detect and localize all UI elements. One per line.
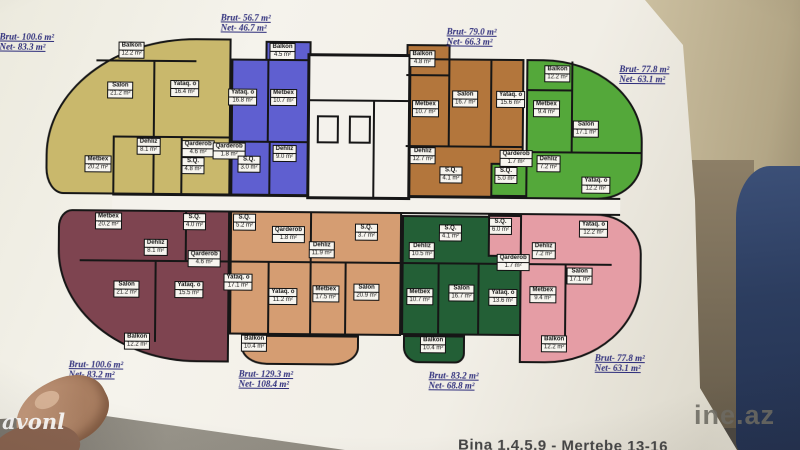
room-label: Dehliz10.5 m² (409, 242, 435, 259)
room-label: S.Q.3.7 m² (355, 224, 378, 241)
room-label: S.Q.6.0 m² (489, 218, 512, 235)
room-area: 4.1 m² (439, 175, 462, 183)
unit-area-label: Brut- 56.7 m²Net- 46.7 m² (221, 12, 271, 32)
room-area: 13.6 m² (488, 298, 517, 306)
room-label: Salon17.1 m² (573, 121, 599, 138)
room-label: Metbex10.7 m² (270, 89, 297, 106)
room-name: S.Q. (233, 214, 256, 223)
room-name: Dehliz (144, 239, 168, 248)
unit-area-label: Brut- 77.8 m²Net- 63.1 m² (595, 353, 645, 373)
room-label: Yataq. o16.4 m² (170, 80, 199, 97)
room-label: Yataq. o13.6 m² (488, 289, 517, 306)
unit-area-label: Brut- 83.2 m²Net- 68.8 m² (429, 370, 479, 390)
room-name: Metbex (270, 89, 297, 98)
room-name: Metbex (406, 288, 433, 297)
room-area: 10.7 m² (412, 109, 439, 117)
room-name: Balkon (124, 333, 150, 342)
room-label: Salon20.9 m² (353, 284, 379, 301)
brut-value: Brut- 77.8 m² (595, 353, 645, 363)
floor-plan: Brut- 100.6 m²Net- 83.3 m² Brut- 56.7 m²… (0, 0, 800, 450)
room-label: Dehliz12.7 m² (410, 147, 436, 164)
room-name: Salon (353, 284, 379, 293)
room-label: Yataq. o15.5 m² (174, 281, 203, 298)
room-label: Qarderob1.7 m² (500, 150, 533, 167)
room-area: 3.0 m² (237, 165, 260, 173)
room-area: 12.2 m² (544, 74, 570, 82)
room-label: Metbex20.2 m² (95, 212, 122, 229)
room-name: Balkon (541, 335, 567, 344)
room-name: Metbex (95, 212, 122, 221)
brut-value: Brut- 79.0 m² (447, 26, 497, 36)
room-label: Salon17.1 m² (566, 267, 592, 284)
room-area: 12.7 m² (410, 156, 436, 164)
room-area: 21.2 m² (107, 90, 133, 98)
room-label: Qarderob1.8 m² (272, 226, 305, 243)
net-value: Net- 108.4 m² (239, 379, 294, 389)
room-name: Balkon (241, 335, 267, 344)
room-name: Qarderob (182, 140, 215, 149)
room-name: Dehliz (537, 155, 561, 164)
room-name: S.Q. (439, 224, 462, 233)
brut-value: Brut- 100.6 m² (69, 359, 124, 369)
room-area: 12.2 m² (581, 186, 610, 194)
brut-value: Brut- 77.8 m² (619, 64, 669, 74)
room-area: 7.2 m² (536, 164, 560, 172)
room-area: 8.1 m² (144, 248, 168, 256)
apartment-unit-top-mid-left (230, 59, 311, 197)
room-label: Balkon4.5 m² (269, 43, 295, 60)
room-name: S.Q. (238, 156, 261, 165)
room-name: Yataq. o (223, 273, 252, 282)
room-label: Yataq. o16.8 m² (228, 88, 257, 105)
room-label: Qarderob4.6 m² (188, 250, 221, 267)
room-area: 8.1 m² (137, 147, 161, 155)
room-name: Balkon (420, 336, 446, 345)
room-label: Yataq. o17.1 m² (223, 273, 252, 290)
room-area: 4.6 m² (182, 149, 215, 157)
room-label: S.Q.4.1 m² (439, 166, 462, 183)
room-name: S.Q. (183, 213, 206, 222)
room-area: 10.7 m² (406, 297, 433, 305)
room-name: Metbex (312, 285, 339, 294)
room-name: S.Q. (439, 166, 462, 175)
room-area: 1.8 m² (272, 235, 305, 243)
room-label: Metbex10.7 m² (406, 288, 433, 305)
room-area: 4.1 m² (439, 233, 462, 241)
room-area: 12.2 m² (541, 344, 567, 352)
room-name: Dehliz (309, 241, 335, 250)
room-name: Metbex (529, 286, 556, 295)
wall-segment (528, 89, 571, 91)
room-name: Qarderob (213, 142, 246, 151)
watermark-left: avonl (2, 409, 65, 434)
room-label: Yataq. o12.2 m² (581, 177, 610, 194)
room-name: Dehliz (409, 242, 435, 251)
brut-value: Brut- 83.2 m² (429, 370, 479, 380)
net-value: Net- 68.8 m² (429, 380, 479, 390)
room-area: 6.0 m² (489, 227, 512, 235)
elevator-shaft (349, 116, 371, 144)
room-name: Qarderob (188, 250, 221, 259)
room-name: S.Q. (494, 167, 517, 176)
room-area: 9.0 m² (273, 154, 297, 162)
room-label: Balkon12.2 m² (124, 333, 150, 350)
room-name: Salon (452, 90, 478, 99)
room-label: Qarderob1.7 m² (497, 254, 530, 271)
room-label: S.Q.4.1 m² (439, 224, 462, 241)
brut-value: Brut- 56.7 m² (221, 12, 271, 22)
room-name: Balkon (270, 43, 296, 52)
room-area: 16.8 m² (228, 97, 257, 105)
room-label: Dehliz11.9 m² (309, 241, 335, 258)
room-area: 15.5 m² (174, 290, 203, 298)
unit-area-label: Brut- 100.6 m²Net- 83.3 m² (0, 31, 54, 51)
room-name: Qarderob (497, 254, 530, 263)
room-label: Metbex10.7 m² (412, 100, 439, 117)
room-area: 16.7 m² (452, 99, 478, 107)
unit-area-label: Brut- 79.0 m²Net- 66.3 m² (447, 26, 497, 46)
room-area: 12.2 m² (579, 230, 608, 238)
room-label: Yataq. o12.2 m² (579, 221, 608, 238)
room-area: 15.6 m² (496, 100, 525, 108)
room-name: Qarderob (500, 150, 533, 159)
room-area: 20.2 m² (84, 164, 111, 172)
room-name: Yataq. o (488, 289, 517, 298)
room-label: S.Q.3.0 m² (237, 156, 260, 173)
room-label: Metbex9.4 m² (533, 100, 560, 117)
room-area: 10.7 m² (270, 98, 297, 106)
room-area: 20.2 m² (95, 221, 122, 229)
room-label: Dehliz7.2 m² (532, 242, 556, 259)
room-label: S.Q.4.8 m² (181, 157, 204, 174)
room-name: Salon (567, 267, 593, 276)
room-label: S.Q.5.2 m² (233, 214, 256, 231)
room-name: Salon (113, 281, 139, 290)
room-label: Balkon4.8 m² (409, 50, 435, 67)
room-label: Salon21.2 m² (113, 281, 139, 298)
net-value: Net- 83.3 m² (0, 41, 54, 51)
brut-value: Brut- 129.3 m² (239, 369, 294, 379)
net-value: Net- 46.7 m² (221, 22, 271, 32)
room-label: Dehliz8.1 m² (144, 239, 168, 256)
room-area: 12.2 m² (124, 342, 150, 350)
room-label: Dehliz9.0 m² (273, 145, 297, 162)
floorplan-paper: Brut- 100.6 m²Net- 83.3 m² Brut- 56.7 m²… (0, 0, 800, 450)
room-area: 10.4 m² (241, 344, 267, 352)
room-label: S.Q.5.0 m² (494, 167, 517, 184)
net-value: Net- 63.1 m² (595, 363, 645, 373)
room-area: 1.7 m² (497, 263, 530, 271)
room-name: Yataq. o (174, 281, 203, 290)
room-name: Metbex (412, 100, 439, 109)
room-area: 17.1 m² (223, 282, 252, 290)
room-name: Salon (448, 284, 474, 293)
elevator-shaft (317, 115, 339, 143)
wall-segment (406, 74, 448, 76)
room-area: 10.5 m² (409, 251, 435, 259)
room-name: S.Q. (355, 224, 378, 233)
room-label: Metbex20.2 m² (84, 155, 111, 172)
room-area: 4.5 m² (269, 52, 295, 60)
watermark-right: ine.az (694, 400, 775, 431)
room-name: Yataq. o (268, 288, 297, 297)
room-area: 4.0 m² (183, 222, 206, 230)
room-name: Metbex (533, 100, 560, 109)
photo-scene: Brut- 100.6 m²Net- 83.3 m² Brut- 56.7 m²… (0, 0, 800, 450)
room-area: 16.7 m² (448, 293, 474, 301)
room-label: Yataq. o11.2 m² (268, 288, 297, 305)
room-area: 9.4 m² (533, 109, 560, 117)
room-area: 7.2 m² (532, 251, 556, 259)
room-name: Metbex (85, 155, 112, 164)
room-area: 5.2 m² (233, 223, 256, 231)
room-label: Balkon12.2 m² (544, 65, 570, 82)
room-label: Qarderob4.6 m² (182, 140, 215, 157)
room-label: Dehliz7.2 m² (536, 155, 560, 172)
room-name: Yataq. o (170, 80, 199, 89)
room-label: Metbex9.4 m² (529, 286, 556, 303)
room-label: Balkon12.2 m² (541, 335, 567, 352)
room-label: Metbex17.5 m² (312, 285, 339, 302)
room-label: Balkon12.2 m² (118, 42, 144, 59)
unit-area-label: Brut- 77.8 m²Net- 63.1 m² (619, 64, 669, 84)
room-name: Salon (107, 81, 133, 90)
room-name: S.Q. (182, 157, 205, 166)
room-name: Balkon (119, 42, 145, 51)
net-value: Net- 66.3 m² (447, 36, 497, 46)
room-name: Qarderob (272, 226, 305, 235)
room-area: 17.1 m² (573, 130, 599, 138)
room-label: Balkon10.4 m² (420, 336, 446, 353)
room-area: 11.2 m² (268, 297, 297, 305)
room-name: S.Q. (489, 218, 512, 227)
room-area: 4.8 m² (409, 59, 435, 67)
room-area: 9.4 m² (529, 295, 556, 303)
room-area: 17.1 m² (566, 276, 592, 284)
room-area: 4.6 m² (188, 259, 221, 267)
room-name: Dehliz (532, 242, 556, 251)
room-area: 20.9 m² (353, 293, 379, 301)
brut-value: Brut- 100.6 m² (0, 31, 54, 41)
net-value: Net- 63.1 m² (619, 74, 669, 84)
room-name: Dehliz (410, 147, 436, 156)
room-area: 17.5 m² (312, 294, 339, 302)
room-name: Dehliz (137, 138, 161, 147)
room-name: Dehliz (273, 145, 297, 154)
room-area: 16.4 m² (170, 89, 199, 97)
room-label: Balkon10.4 m² (241, 335, 267, 352)
room-name: Yataq. o (228, 88, 257, 97)
room-area: 4.8 m² (181, 166, 204, 174)
room-label: Salon21.2 m² (107, 81, 133, 98)
room-area: 10.4 m² (420, 345, 446, 353)
room-area: 3.7 m² (355, 233, 378, 241)
room-area: 5.0 m² (494, 176, 517, 184)
room-label: S.Q.4.0 m² (183, 213, 206, 230)
room-label: Salon16.7 m² (452, 90, 478, 107)
room-area: 12.2 m² (118, 51, 144, 59)
room-name: Yataq. o (496, 91, 525, 100)
room-area: 11.9 m² (309, 250, 335, 258)
room-area: 21.2 m² (113, 290, 139, 298)
room-label: Dehliz8.1 m² (137, 138, 161, 155)
room-name: Balkon (409, 50, 435, 59)
unit-area-label: Brut- 129.3 m²Net- 108.4 m² (239, 369, 294, 389)
room-label: Yataq. o15.6 m² (496, 91, 525, 108)
room-area: 1.7 m² (500, 159, 533, 167)
room-label: Salon16.7 m² (448, 284, 474, 301)
room-name: Yataq. o (581, 177, 610, 186)
room-name: Salon (573, 121, 599, 130)
room-name: Balkon (544, 65, 570, 74)
plan-caption: Bina 1,4,5,9 - Mertebe 13-16 (398, 436, 728, 450)
room-name: Yataq. o (579, 221, 608, 230)
